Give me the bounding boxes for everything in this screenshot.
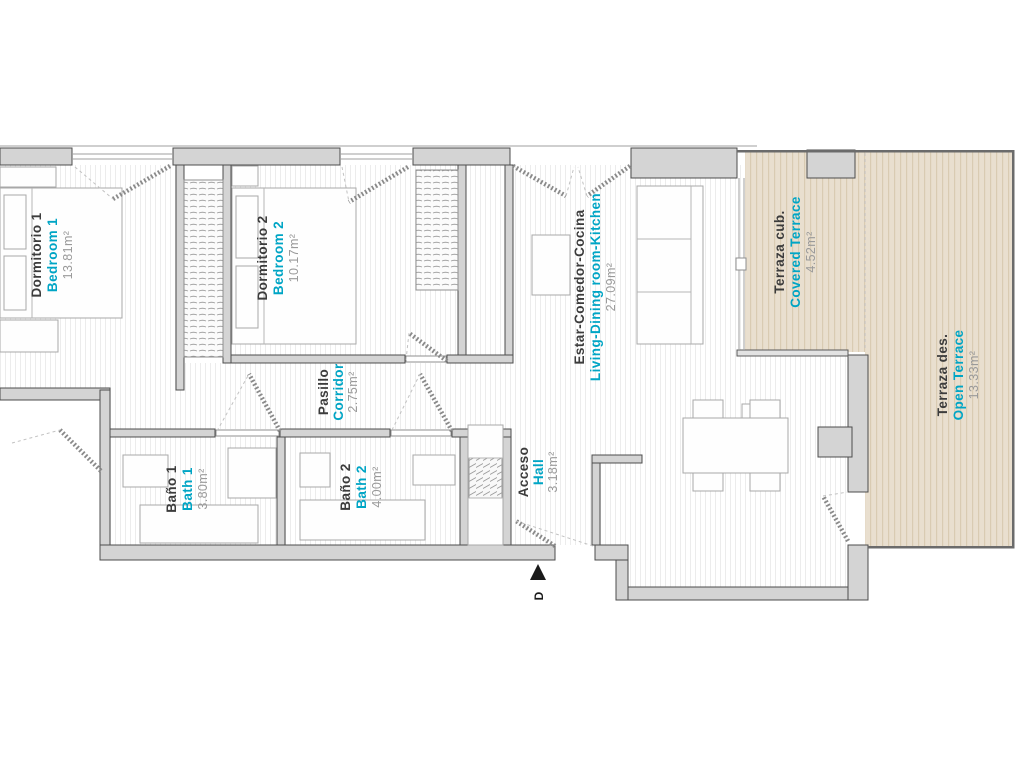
bath-2-toilet [300, 453, 330, 487]
svg-text:Bedroom 2: Bedroom 2 [271, 221, 286, 295]
bed-1-pillow [4, 195, 26, 249]
floor-plan-drawing: Dormitorio 1 Bedroom 1 13.81m² Dormitori… [0, 0, 1024, 768]
svg-text:Hall: Hall [531, 459, 546, 485]
sofa [637, 186, 703, 344]
svg-text:3.80m²: 3.80m² [196, 468, 210, 509]
dining-table [683, 418, 788, 473]
svg-text:Terraza des.: Terraza des. [935, 334, 950, 417]
svg-text:10.17m²: 10.17m² [287, 234, 301, 283]
wardrobe-1 [184, 180, 223, 357]
door-bedroom-1 [60, 430, 102, 472]
dining-chair [750, 471, 780, 491]
svg-text:4.52m²: 4.52m² [804, 231, 818, 272]
label-corridor: Pasillo Corridor 2.75m² [316, 363, 360, 421]
svg-text:Corridor: Corridor [331, 363, 346, 421]
wardrobe-2 [416, 170, 458, 290]
kitchen-appliance [469, 458, 502, 498]
label-bath-1: Baño 1 Bath 1 3.80m² [164, 465, 210, 513]
bath-1-shower [228, 448, 276, 498]
floor-plan-page: Dormitorio 1 Bedroom 1 13.81m² Dormitori… [0, 0, 1024, 768]
svg-text:Baño 1: Baño 1 [164, 465, 179, 513]
bed-1-pillow [4, 256, 26, 310]
floor-corridor [110, 363, 513, 429]
nightstand [0, 167, 56, 187]
bath-1-tub [140, 505, 258, 543]
entrance-letter: D [532, 591, 546, 600]
svg-text:Bedroom 1: Bedroom 1 [45, 218, 60, 292]
nightstand [232, 166, 258, 186]
svg-text:3.18m²: 3.18m² [546, 451, 560, 492]
nightstand [0, 320, 58, 352]
covered-terrace-low-wall [737, 350, 848, 356]
dining-chair [693, 400, 723, 420]
svg-text:Dormitorio 2: Dormitorio 2 [255, 215, 270, 300]
dining-chair [693, 471, 723, 491]
svg-text:27.09m²: 27.09m² [604, 263, 618, 312]
svg-text:Open Terrace: Open Terrace [951, 329, 966, 420]
svg-text:Covered Terrace: Covered Terrace [788, 196, 803, 308]
svg-text:Living-Dining room-Kitchen: Living-Dining room-Kitchen [588, 193, 603, 381]
entrance-marker: D [530, 564, 546, 600]
svg-text:Estar-Comedor-Cocina: Estar-Comedor-Cocina [572, 209, 587, 364]
glazing-handle [736, 258, 746, 270]
entrance-arrow-icon [530, 564, 546, 580]
bath-1-sink [123, 455, 168, 487]
svg-text:4.00m²: 4.00m² [370, 466, 384, 507]
dining-chair [750, 400, 780, 420]
svg-text:Acceso: Acceso [516, 447, 531, 497]
label-bath-2: Baño 2 Bath 2 4.00m² [338, 463, 384, 510]
svg-text:2.75m²: 2.75m² [346, 371, 360, 412]
svg-text:Bath 2: Bath 2 [354, 465, 369, 509]
svg-text:Dormitorio 1: Dormitorio 1 [29, 212, 44, 297]
svg-text:Baño 2: Baño 2 [338, 463, 353, 510]
svg-text:Bath 1: Bath 1 [180, 467, 195, 511]
svg-text:Terraza cub.: Terraza cub. [772, 210, 787, 293]
svg-text:13.33m²: 13.33m² [967, 351, 981, 400]
svg-text:Pasillo: Pasillo [316, 369, 331, 415]
svg-text:13.81m²: 13.81m² [61, 231, 75, 280]
coffee-table [532, 235, 570, 295]
floor-living-lower [628, 545, 848, 587]
bath-2-sink [413, 455, 455, 485]
